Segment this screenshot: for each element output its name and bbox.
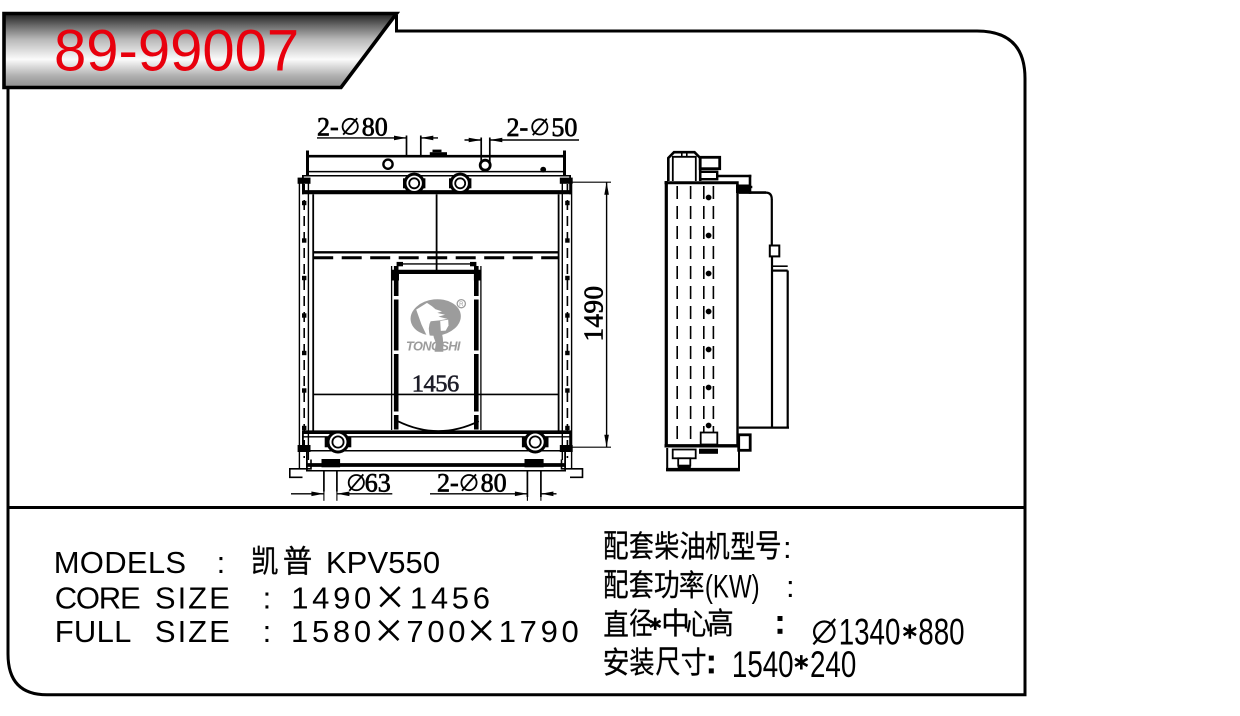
svg-text:2-: 2-: [507, 113, 529, 142]
svg-text::: :: [786, 569, 795, 604]
svg-text:1490: 1490: [579, 286, 609, 342]
svg-text:50: 50: [551, 113, 577, 142]
svg-text:89-99007: 89-99007: [54, 19, 299, 84]
svg-text:CORE: CORE: [55, 580, 140, 615]
svg-text:1456: 1456: [412, 370, 459, 397]
svg-text:2-: 2-: [317, 112, 339, 141]
svg-text:1580: 1580: [291, 614, 375, 649]
svg-text:R: R: [459, 302, 464, 308]
svg-text::: :: [783, 530, 792, 565]
svg-text:(KW): (KW): [705, 569, 760, 605]
svg-text:63: 63: [365, 468, 391, 497]
svg-text:1540: 1540: [732, 643, 794, 685]
svg-text::: :: [263, 614, 272, 649]
svg-text::: :: [263, 580, 272, 615]
svg-text:1790: 1790: [499, 614, 583, 649]
svg-text:2-: 2-: [437, 468, 459, 497]
svg-text:SIZE: SIZE: [155, 614, 232, 649]
svg-text:KPV550: KPV550: [326, 545, 440, 580]
svg-text:700: 700: [406, 614, 469, 649]
svg-text:1490: 1490: [291, 580, 375, 615]
svg-text:80: 80: [481, 468, 507, 497]
svg-text::: :: [217, 545, 226, 580]
svg-text:FULL: FULL: [55, 614, 132, 649]
svg-text:240: 240: [810, 643, 856, 685]
svg-text:1456: 1456: [410, 580, 494, 615]
svg-text:TONGSHI: TONGSHI: [406, 339, 461, 354]
svg-text:SIZE: SIZE: [155, 580, 232, 615]
svg-text:80: 80: [362, 112, 388, 141]
svg-text:MODELS: MODELS: [54, 545, 187, 580]
svg-text:880: 880: [918, 611, 964, 653]
